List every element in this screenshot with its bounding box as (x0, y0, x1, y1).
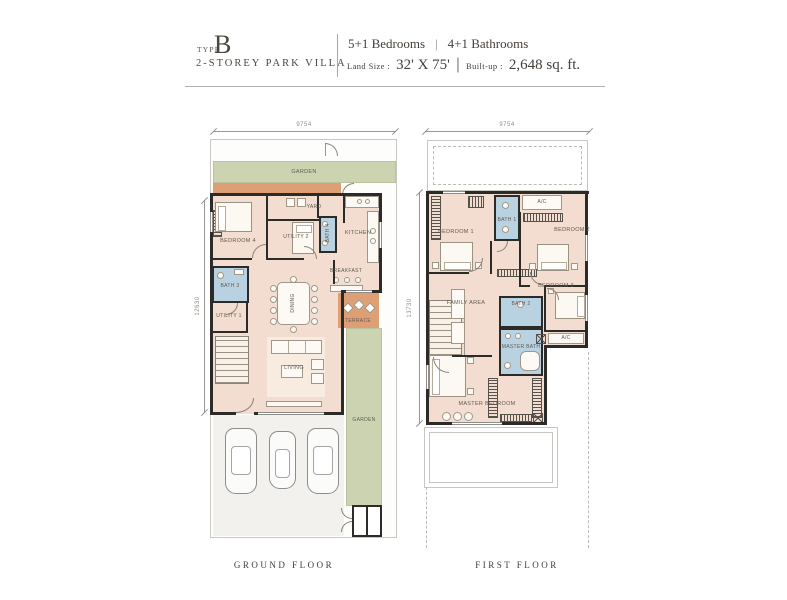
room-label: A/C (537, 199, 546, 205)
sofa (271, 340, 322, 354)
room-label: TERRACE (345, 318, 371, 324)
room-label: BATH 2 (512, 301, 531, 307)
chair (311, 296, 318, 303)
bed (537, 244, 569, 271)
kitchen-counter (367, 211, 379, 263)
bed (555, 292, 585, 319)
stove-burner (370, 238, 376, 244)
ac-unit (536, 334, 546, 344)
dimension-line (419, 192, 420, 424)
room-label: BEDROOM 2 (554, 227, 590, 233)
wall (366, 505, 368, 537)
wall (490, 241, 492, 274)
basin (515, 333, 521, 339)
dimension-line (213, 131, 396, 132)
open-area-dashed (433, 146, 582, 185)
wall (212, 258, 252, 260)
wall (544, 287, 546, 330)
chair (311, 285, 318, 292)
floor-plan-sheet: TYPE B 2-STOREY PARK VILLA 5+1 Bedrooms … (0, 0, 787, 600)
closet (523, 213, 563, 222)
chair (270, 296, 277, 303)
chair (311, 307, 318, 314)
room-label: KITCHEN (345, 230, 371, 236)
room-label: MASTER BEDROOM (458, 401, 515, 407)
dresser-stool (442, 412, 451, 421)
dimension-value: 9754 (499, 122, 514, 128)
wardrobe (488, 378, 498, 418)
shower (520, 351, 540, 371)
chair (270, 285, 277, 292)
wall (266, 195, 268, 260)
room-label: GARDEN (291, 169, 316, 175)
dimension-value: 13730 (407, 298, 413, 317)
dimension-value: 9754 (296, 122, 311, 128)
sink (365, 199, 370, 204)
chaise (451, 322, 465, 344)
chair (311, 318, 318, 325)
washer (286, 198, 295, 207)
wall (519, 285, 530, 287)
window (585, 295, 588, 321)
side-table (467, 357, 474, 364)
floor-caption: GROUND FLOOR (234, 560, 334, 570)
room-label: BATH 4 (325, 224, 331, 243)
side-table (571, 263, 578, 270)
wall (544, 345, 547, 425)
staircase (215, 336, 249, 384)
dimension-line (425, 131, 590, 132)
toilet (217, 272, 224, 279)
room-label: BEDROOM 4 (220, 238, 256, 244)
dimension-value: 12630 (195, 296, 201, 315)
room-label: A/C (561, 335, 570, 341)
floor-caption: FIRST FLOOR (475, 560, 559, 570)
chair (290, 276, 297, 283)
dimension-line (204, 200, 205, 413)
kitchen-counter (345, 196, 379, 208)
room-label: BREAKFAST (330, 268, 362, 274)
sliding-door (258, 412, 324, 415)
room-label: MASTER BATH (502, 344, 541, 350)
wall (452, 355, 492, 357)
wall (343, 195, 345, 223)
balcony-roof-inner (429, 432, 553, 483)
room-label: BATH 3 (221, 283, 240, 289)
window (585, 235, 588, 261)
side-table (432, 262, 439, 269)
stool (344, 277, 350, 283)
toilet (504, 362, 511, 369)
wall (246, 303, 248, 333)
closet (500, 414, 532, 422)
window (210, 212, 213, 232)
wall (428, 272, 469, 274)
room-label: BEDROOM 3 (538, 283, 574, 289)
wall (426, 191, 429, 425)
wall (544, 330, 588, 332)
wall (544, 345, 588, 348)
dresser-stool (464, 412, 473, 421)
toilet (502, 202, 509, 209)
chair (270, 307, 277, 314)
wall (212, 331, 248, 333)
window (379, 222, 382, 248)
car (225, 428, 257, 494)
wall (266, 219, 319, 221)
wall (266, 258, 304, 260)
wall (341, 290, 344, 415)
bed (215, 202, 252, 232)
tv-console (266, 401, 322, 407)
window (346, 290, 372, 293)
closet (468, 196, 484, 208)
room-label: UTILITY 2 (283, 234, 308, 240)
wall (210, 412, 236, 415)
room-label: BATH 1 (498, 217, 517, 223)
dresser-stool (453, 412, 462, 421)
dimension-tick (416, 420, 423, 427)
room-label: DINING (290, 293, 296, 312)
wall (519, 212, 521, 287)
car (269, 431, 296, 489)
projection-dashed-line (426, 487, 427, 548)
washer (297, 198, 306, 207)
projection-dashed-line (588, 352, 589, 548)
room-label: GARDEN (352, 417, 375, 423)
car (307, 428, 339, 494)
wall (210, 193, 382, 196)
room-label: BEDROOM 1 (438, 229, 474, 235)
room-label: UTILITY 1 (216, 313, 241, 319)
armchair (311, 359, 324, 370)
wall (585, 191, 588, 348)
stool (355, 277, 361, 283)
sink (357, 199, 362, 204)
window (452, 422, 502, 425)
armchair (311, 373, 324, 384)
dimension-tick (586, 128, 593, 135)
window (426, 365, 429, 389)
chair (290, 326, 297, 333)
wardrobe (532, 378, 542, 418)
chair (270, 318, 277, 325)
room-label: LIVING (284, 365, 304, 371)
side-table (529, 263, 536, 270)
side-table (467, 388, 474, 395)
basin (502, 226, 509, 233)
room-label: FAMILY AREA (447, 300, 486, 306)
basin (234, 269, 244, 275)
basin (505, 333, 511, 339)
window (443, 191, 465, 194)
room-label: YARD (307, 204, 322, 210)
